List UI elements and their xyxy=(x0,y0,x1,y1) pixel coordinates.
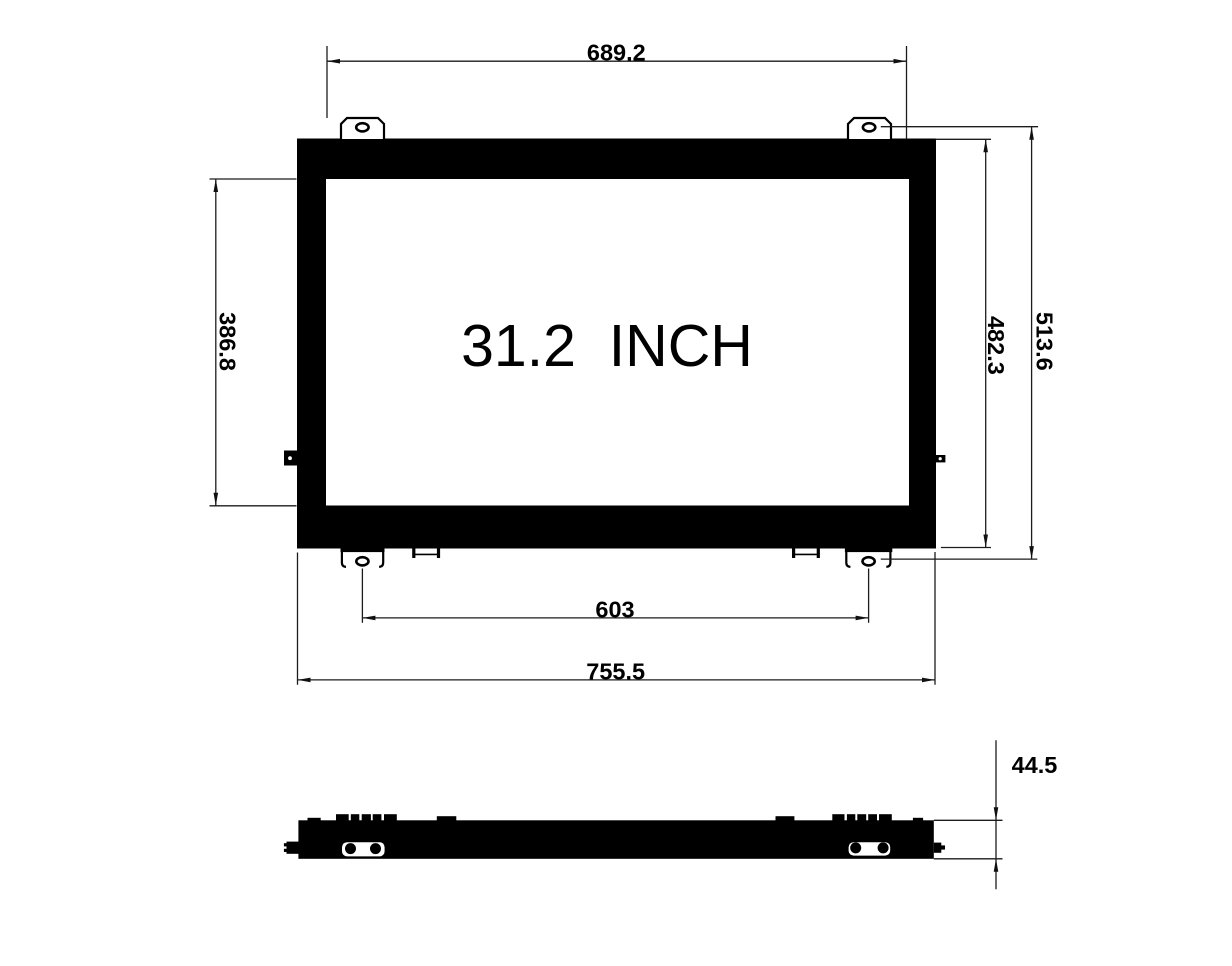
svg-text:31.2 INCH: 31.2 INCH xyxy=(461,313,753,379)
svg-text:755.5: 755.5 xyxy=(586,658,645,684)
svg-text:386.8: 386.8 xyxy=(215,312,241,371)
svg-text:482.3: 482.3 xyxy=(983,316,1009,375)
svg-text:513.6: 513.6 xyxy=(1032,312,1058,371)
svg-text:603: 603 xyxy=(595,596,634,622)
svg-text:44.5: 44.5 xyxy=(1012,752,1058,778)
svg-text:689.2: 689.2 xyxy=(587,40,646,66)
